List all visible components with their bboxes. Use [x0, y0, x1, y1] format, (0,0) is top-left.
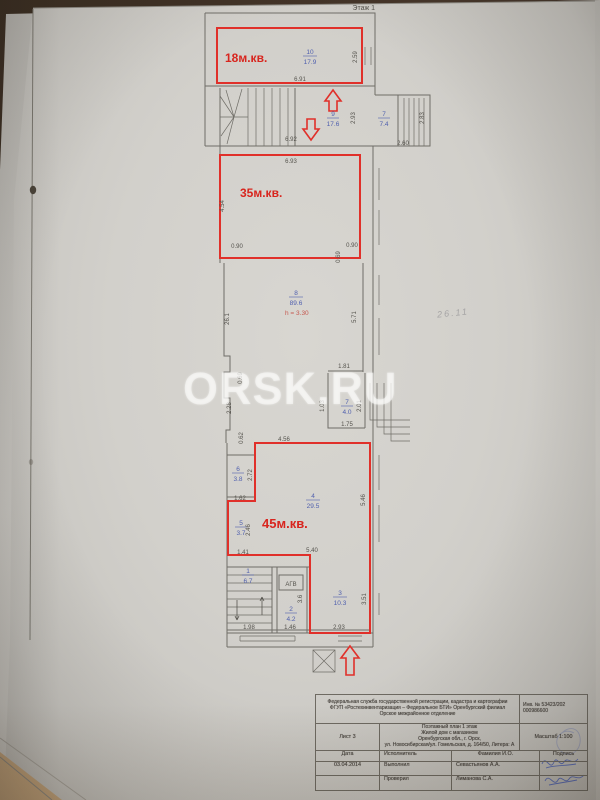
- svg-text:1.46: 1.46: [284, 625, 296, 631]
- svg-text:3.51: 3.51: [362, 593, 368, 605]
- svg-text:10.3: 10.3: [334, 600, 347, 607]
- org-line3: Орское межрайонное отделение: [316, 712, 519, 718]
- stamp-org-header: Федеральная служба государственной регис…: [316, 695, 520, 724]
- stamp-col-sign: Подпись: [540, 751, 587, 762]
- svg-text:9: 9: [331, 111, 335, 118]
- svg-text:5.40: 5.40: [306, 548, 318, 554]
- scale-value: Масштаб 1:100: [520, 734, 587, 740]
- floor-label: Этаж 1: [352, 5, 375, 12]
- svg-text:5.71: 5.71: [352, 311, 358, 323]
- label-agv: АГВ: [285, 582, 296, 588]
- svg-text:2.93: 2.93: [351, 112, 357, 124]
- red-arrow-down: [303, 119, 319, 140]
- red-outline-35sqm: [220, 155, 360, 258]
- red-arrow-up-bottom-entrance: [341, 646, 359, 675]
- svg-text:1.41: 1.41: [237, 550, 249, 556]
- svg-text:1.98: 1.98: [243, 625, 255, 631]
- svg-text:6.91: 6.91: [294, 77, 306, 83]
- stamp-date: 03.04.2014: [316, 762, 380, 776]
- svg-text:7.4: 7.4: [379, 121, 388, 128]
- stamp-role-2: Проверил: [380, 776, 452, 791]
- stamp-signature-1: [540, 762, 587, 776]
- label-45sqm: 45м.кв.: [262, 516, 308, 531]
- stamp-inventory-number: Инв. № 53423/202 000986600: [520, 695, 587, 724]
- svg-text:1.62: 1.62: [234, 496, 246, 502]
- svg-text:17.6: 17.6: [327, 121, 340, 128]
- svg-text:6.7: 6.7: [243, 578, 252, 585]
- svg-text:4.54: 4.54: [220, 200, 226, 212]
- label-ceiling-height: h = 3.30: [285, 310, 309, 317]
- svg-text:4.2: 4.2: [286, 616, 295, 623]
- svg-text:2.72: 2.72: [248, 469, 254, 481]
- punch-hole: [30, 186, 36, 194]
- building-walls: [205, 13, 430, 672]
- svg-text:6: 6: [236, 466, 240, 473]
- stamp-signature-2: [540, 776, 587, 791]
- svg-text:29.5: 29.5: [307, 503, 320, 510]
- watermark: ORSK.RU: [183, 363, 443, 415]
- svg-text:1: 1: [246, 568, 250, 575]
- punch-hole-faint: [29, 459, 33, 465]
- stamp-col-name: Фамилия И.О.: [452, 751, 540, 762]
- svg-text:5.46: 5.46: [361, 494, 367, 506]
- stamp-col-executor: Исполнитель: [380, 751, 452, 762]
- photographed-floor-plan: Этаж 1 18м.кв. 35м.кв. 45м.кв. h = 3.30 …: [0, 0, 600, 800]
- svg-text:1.75: 1.75: [341, 422, 353, 428]
- svg-text:6.92: 6.92: [285, 137, 297, 143]
- svg-text:0.62: 0.62: [239, 432, 245, 444]
- svg-text:7: 7: [382, 111, 386, 118]
- svg-text:3.7: 3.7: [236, 530, 245, 537]
- stamp-name-1: Севастьянов А.А.: [452, 762, 540, 776]
- svg-text:2.46: 2.46: [246, 524, 252, 536]
- svg-text:2.60: 2.60: [397, 141, 409, 147]
- stamp-date-empty: [316, 776, 380, 791]
- svg-text:8: 8: [294, 290, 298, 297]
- dimension-labels: 6.91 2.59 6.92 2.93 2.83 2.60 6.93 4.54 …: [220, 51, 426, 631]
- svg-text:2.93: 2.93: [333, 625, 345, 631]
- svg-text:6.93: 6.93: [285, 159, 297, 165]
- label-18sqm: 18м.кв.: [225, 51, 267, 65]
- svg-text:3.6: 3.6: [298, 594, 304, 603]
- svg-text:3.8: 3.8: [233, 476, 242, 483]
- svg-text:0.90: 0.90: [231, 244, 243, 250]
- svg-text:2: 2: [289, 606, 293, 613]
- svg-text:4: 4: [311, 493, 315, 500]
- stamp-role-1: Выполнил: [380, 762, 452, 776]
- svg-text:3: 3: [338, 590, 342, 597]
- svg-text:2.83: 2.83: [420, 112, 426, 124]
- title-block: Федеральная служба государственной регис…: [315, 694, 588, 791]
- svg-text:2.59: 2.59: [353, 51, 359, 63]
- stamp-name-2: Лиманова С.А.: [452, 776, 540, 791]
- label-35sqm: 35м.кв.: [240, 186, 282, 200]
- stamp-sheet: Лист 3: [316, 724, 380, 751]
- svg-text:0.90: 0.90: [346, 243, 358, 249]
- svg-text:10: 10: [306, 49, 314, 56]
- svg-text:5: 5: [239, 520, 243, 527]
- svg-text:0.69: 0.69: [336, 251, 342, 263]
- svg-text:4.56: 4.56: [278, 437, 290, 443]
- sheet-number: Лист 3: [316, 734, 379, 740]
- stamp-scale: Масштаб 1:100: [520, 724, 587, 751]
- stamp-object: Поэтажный план 1 этаж Жилой дом с магази…: [380, 724, 520, 751]
- object-line4: ул. Новосибирская/ул. Гомельская, д. 164…: [380, 743, 519, 749]
- svg-text:17.9: 17.9: [304, 59, 317, 66]
- red-annotations: [217, 28, 370, 675]
- svg-text:89.6: 89.6: [290, 300, 303, 307]
- stamp-col-date: Дата: [316, 751, 380, 762]
- inv-line2: 000986600: [523, 709, 587, 715]
- svg-text:26.1: 26.1: [225, 313, 231, 325]
- red-arrow-up-entrance: [325, 90, 341, 111]
